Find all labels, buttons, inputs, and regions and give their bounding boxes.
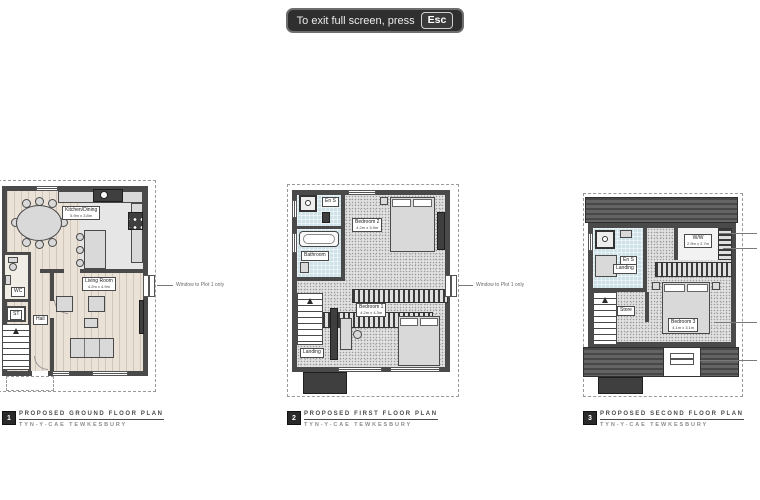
wall-hall-living bbox=[50, 273, 54, 301]
room-label-bathroom: Bathroom bbox=[301, 251, 329, 261]
basin bbox=[5, 275, 11, 285]
room-name: Landing bbox=[303, 350, 321, 356]
title-text: PROPOSED FIRST FLOOR PLAN TYN-Y-CAE TEWK… bbox=[304, 411, 438, 428]
sofa bbox=[70, 338, 114, 358]
stool bbox=[76, 259, 84, 267]
plan-title: PROPOSED FIRST FLOOR PLAN bbox=[304, 411, 438, 420]
pillow bbox=[420, 318, 438, 326]
stair-direction-arrow bbox=[307, 298, 313, 304]
stair-direction-arrow bbox=[602, 297, 608, 303]
room-name: ST bbox=[13, 312, 19, 318]
armchair bbox=[56, 296, 73, 312]
room-dims: 4.2m x 4.3m bbox=[359, 311, 383, 316]
room-label-wc: WC bbox=[11, 287, 25, 297]
floor-number-logo: 3 bbox=[583, 411, 597, 425]
window bbox=[390, 367, 440, 372]
title-block-first: 2 PROPOSED FIRST FLOOR PLAN TYN-Y-CAE TE… bbox=[287, 411, 438, 428]
stair-direction-arrow bbox=[13, 328, 19, 334]
room-name: Bathroom bbox=[304, 253, 326, 259]
tv-unit bbox=[139, 300, 144, 334]
plan-subtitle: TYN-Y-CAE TEWKESBURY bbox=[600, 422, 744, 428]
room-label-bedroom3: Bedroom 3 4.1m x 3.1m bbox=[668, 318, 698, 332]
roof-slope-top bbox=[585, 197, 738, 223]
room-label-living: Living Room 4.2m x 4.9m bbox=[82, 277, 116, 291]
callout-leader-line bbox=[700, 360, 757, 361]
room-label-hall: Hall bbox=[33, 315, 48, 325]
roof-slope-bottom bbox=[583, 347, 739, 377]
dining-chair bbox=[48, 238, 57, 247]
wall-bathroom-landing bbox=[297, 277, 341, 281]
room-label-ensuite: En S bbox=[322, 197, 339, 207]
window bbox=[292, 233, 297, 253]
window-plot1 bbox=[445, 275, 457, 297]
stool bbox=[76, 246, 84, 254]
plan-title: PROPOSED SECOND FLOOR PLAN bbox=[600, 411, 744, 420]
room-label-bedroom1: Bedroom 1 4.2m x 4.3m bbox=[356, 303, 386, 317]
bathtub-inner bbox=[303, 234, 335, 244]
wardrobe bbox=[330, 308, 338, 360]
room-label-ww: W/W 2.9m x 2.7m bbox=[684, 234, 712, 248]
window bbox=[36, 186, 58, 191]
room-label-landing: Landing bbox=[300, 348, 324, 358]
armchair bbox=[88, 296, 105, 312]
dining-table bbox=[16, 205, 62, 241]
toilet-bowl bbox=[9, 263, 17, 271]
shower-drain bbox=[305, 200, 311, 206]
room-dims: 2.9m x 2.7m bbox=[687, 242, 709, 247]
wardrobe-rail-band bbox=[655, 262, 732, 277]
wardrobe bbox=[437, 212, 445, 250]
room-label-bedroom2: Bedroom 2 4.2m x 3.9m bbox=[352, 218, 382, 232]
ensuite-toilet bbox=[322, 212, 330, 223]
chimney-block bbox=[303, 372, 347, 394]
window bbox=[292, 200, 297, 218]
room-label-kitchen: Kitchen/Dining 5.9m x 3.8m bbox=[62, 206, 100, 220]
dining-chair bbox=[35, 240, 44, 249]
floor-number-logo: 2 bbox=[287, 411, 301, 425]
title-block-second: 3 PROPOSED SECOND FLOOR PLAN TYN-Y-CAE T… bbox=[583, 411, 744, 428]
plan-subtitle: TYN-Y-CAE TEWKESBURY bbox=[19, 422, 164, 428]
desk bbox=[340, 318, 352, 350]
annotation-leader-line bbox=[157, 285, 173, 286]
window bbox=[92, 371, 128, 376]
basin bbox=[620, 230, 632, 238]
pillow bbox=[400, 318, 418, 326]
dormer-window bbox=[670, 353, 694, 365]
room-label-landing: Landing bbox=[613, 264, 637, 274]
kitchen-island bbox=[84, 230, 106, 269]
title-text: PROPOSED SECOND FLOOR PLAN TYN-Y-CAE TEW… bbox=[600, 411, 744, 428]
window bbox=[348, 190, 376, 195]
wall-bath-bedroom bbox=[341, 195, 345, 281]
annotation-leader-line bbox=[459, 285, 473, 286]
room-dims: 4.2m x 3.9m bbox=[355, 226, 379, 231]
fullscreen-exit-toast: To exit full screen, press Esc bbox=[286, 8, 464, 33]
porch-outline bbox=[6, 376, 54, 391]
room-name: WC bbox=[14, 289, 22, 295]
floor-number-logo: 1 bbox=[2, 411, 16, 425]
room-name: En S bbox=[325, 199, 336, 205]
pillow bbox=[413, 199, 432, 207]
title-block-ground: 1 PROPOSED GROUND FLOOR PLAN TYN-Y-CAE T… bbox=[2, 411, 164, 428]
fullscreen-floorplan-view: { "toast": { "message": "To exit full sc… bbox=[0, 0, 760, 500]
window-plot1 bbox=[143, 275, 155, 297]
room-label-store: Store bbox=[617, 306, 635, 316]
hob-unit bbox=[128, 212, 143, 230]
room-dims: 5.9m x 3.8m bbox=[65, 214, 97, 219]
room-label-st: ST bbox=[10, 310, 22, 320]
bedside-table bbox=[652, 282, 660, 290]
desk-chair bbox=[353, 330, 362, 339]
wall-ensuite-right bbox=[643, 228, 647, 288]
window bbox=[52, 371, 70, 376]
room-dims: 4.2m x 4.9m bbox=[85, 285, 113, 290]
chimney-block bbox=[598, 377, 643, 394]
window-annotation: Window to Plot 1 only bbox=[176, 282, 224, 288]
plan-subtitle: TYN-Y-CAE TEWKESBURY bbox=[304, 422, 438, 428]
bathroom-toilet bbox=[300, 262, 309, 273]
wall-hall-living bbox=[50, 318, 54, 376]
shower-drain bbox=[602, 236, 608, 242]
window bbox=[338, 367, 382, 372]
callout-leader-line bbox=[714, 322, 757, 323]
plan-title: PROPOSED GROUND FLOOR PLAN bbox=[19, 411, 164, 420]
pillow bbox=[664, 284, 685, 292]
window bbox=[588, 233, 593, 251]
pillow bbox=[687, 284, 708, 292]
esc-key-badge: Esc bbox=[421, 12, 454, 29]
stool bbox=[76, 233, 84, 241]
sofa-cushion-line bbox=[84, 339, 85, 357]
wall-ww-left bbox=[674, 228, 678, 260]
sink-unit bbox=[93, 189, 123, 202]
callout-leader-line bbox=[723, 248, 757, 249]
wall-divider bbox=[80, 269, 148, 273]
bedside-table bbox=[380, 197, 388, 205]
pillow bbox=[392, 199, 411, 207]
room-name: Hall bbox=[36, 317, 45, 323]
sink-bowl bbox=[100, 191, 108, 199]
wall-store bbox=[645, 292, 649, 322]
window-annotation: Window to Plot 1 only bbox=[476, 282, 524, 288]
callout-leader-line bbox=[719, 233, 757, 234]
bedside-table bbox=[712, 282, 720, 290]
title-text: PROPOSED GROUND FLOOR PLAN TYN-Y-CAE TEW… bbox=[19, 411, 164, 428]
room-name: En S bbox=[623, 258, 634, 264]
balustrade-band bbox=[352, 289, 448, 303]
room-name: Landing bbox=[616, 266, 634, 272]
room-name: Store bbox=[620, 308, 632, 314]
coffee-table bbox=[84, 318, 98, 328]
sofa-cushion-line bbox=[99, 339, 100, 357]
toast-message: To exit full screen, press bbox=[297, 15, 415, 27]
room-dims: 4.1m x 3.1m bbox=[671, 326, 695, 331]
